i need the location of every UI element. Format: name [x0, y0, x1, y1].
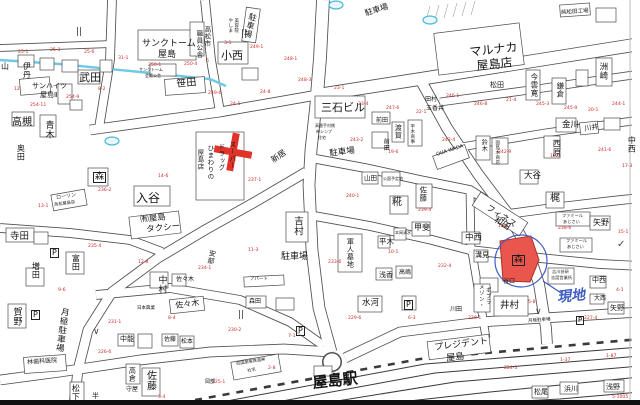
building-footprint [576, 70, 588, 86]
lot-number-label: 4-1 [616, 289, 624, 294]
map-name-label: 矢野 [593, 219, 609, 227]
lot-number-label: 8-2 [98, 88, 106, 93]
parking-stall-line [462, 2, 466, 16]
map-name-label: スーパー [228, 141, 235, 169]
map-name-label: 増田 [31, 262, 39, 279]
lot-number-label: 245-9 [564, 107, 577, 112]
lot-number-label: 5-8 [528, 301, 536, 306]
lot-number-label: 246-8 [474, 103, 487, 108]
map-name-label: 本岡清水 [395, 231, 411, 235]
lot-number-label: 1-37 [560, 359, 570, 364]
lot-number-label: 3-1 [224, 42, 232, 47]
route-badge-icon [105, 137, 119, 145]
map-name-label: 渡賀 [394, 124, 401, 139]
lot-number-label: 12 [14, 88, 20, 93]
lot-number-label: 249-6 [208, 92, 221, 97]
map-name-label: || [241, 30, 247, 39]
map-name-label: 住宅 [318, 136, 326, 140]
lot-number-label: 12-8 [138, 261, 148, 266]
map-name-label: 森田 [249, 299, 261, 305]
map-name-label: 矢野 [610, 305, 624, 312]
parking-label: P [296, 326, 305, 336]
map-name-label: 高嶋 [399, 270, 411, 276]
map-name-label: 溝見 [475, 252, 489, 259]
map-name-label: ファミール [562, 214, 583, 218]
building-footprint [276, 298, 294, 310]
parking-label: P [404, 300, 413, 310]
map-name-label: 浜川 [564, 386, 578, 393]
building-footprint [596, 8, 616, 22]
lot-number-label: 3-4 [158, 396, 166, 401]
lot-number-label: 243-2 [350, 139, 363, 144]
map-name-label: 駐車場 [281, 253, 308, 262]
map-name-label: 松下 [71, 384, 79, 401]
map-name-label: 奥田 [16, 144, 24, 161]
lot-number-label: 25-1 [18, 51, 28, 56]
map-name-label: 高倉 [128, 367, 135, 382]
map-name-label: 寺田 [10, 232, 29, 242]
lot-number-label: 238-6 [558, 227, 571, 232]
lot-number-label: 21-4 [506, 99, 516, 104]
map-name-label: メゾン・ [477, 284, 483, 308]
map-name-label: 中能 [120, 336, 134, 343]
lot-number-label: 5-1005 [612, 396, 628, 401]
map-name-label: 大谷 [524, 172, 541, 181]
parking-label: P [50, 248, 59, 258]
map-name-label: 屋島Ⅱ [40, 92, 57, 99]
map-name-label: ドラッグ [217, 143, 224, 171]
residential-map: 山伊丹武田サンハイツ屋島Ⅱ高槻青木奥田サンクトーム屋島高松市職員公舎サンクトーム… [0, 0, 640, 405]
map-name-label: 鈴木 [480, 139, 486, 152]
map-name-label: 佐藤 [164, 337, 176, 343]
lot-number-label: 247-6 [386, 107, 399, 112]
lot-number-label: 6 [206, 60, 209, 65]
building-footprint [242, 68, 258, 80]
map-name-label: 玉香井 [426, 106, 444, 112]
lot-number-label: 250-4 [184, 63, 197, 68]
map-name-label: 水河 [362, 299, 379, 308]
map-name-label: 西原 [551, 139, 560, 157]
map-name-label: ∨ [93, 328, 100, 337]
map-name-label: 志度営業所 [551, 276, 572, 280]
building-footprint [100, 60, 112, 72]
lot-number-label: 23-1 [334, 87, 344, 92]
map-name-label: 大西 [594, 296, 606, 302]
map-name-label: 田村 [425, 97, 437, 103]
lot-number-label: 239-4 [418, 209, 431, 214]
lot-number-label: 229-6 [348, 317, 361, 322]
map-name-label: 佐藤 [419, 186, 427, 202]
lot-number-label: 230-2 [228, 329, 241, 334]
map-name-label: 職員公舎 [195, 30, 202, 58]
map-name-label: 谷口 [503, 279, 515, 285]
map-name-label: || [76, 28, 82, 37]
map-name-label: 浅野 [606, 384, 620, 391]
map-name-label: 中村 [156, 275, 165, 294]
map-name-label: 会館公舎 [145, 74, 161, 78]
map-name-label: 賀野 [11, 307, 20, 326]
map-name-label: 森 [93, 172, 106, 183]
map-name-label: 山 [1, 63, 9, 71]
lot-number-label: 224-3 [504, 367, 517, 372]
lot-number-label: 234-1 [198, 267, 211, 272]
map-name-label: サンクトーム [142, 40, 196, 49]
map-name-label: 川田 [450, 307, 462, 313]
map-name-label: 岡部 [205, 380, 215, 385]
map-name-label: 日本興業 [137, 307, 155, 312]
map-name-label: 井村 [500, 301, 519, 311]
map-name-label: 山田 [364, 175, 377, 182]
map-name-label: やしま [227, 18, 232, 33]
map-name-label: 今雲寛 [530, 73, 538, 97]
building-footprint [604, 118, 620, 130]
lot-number-label: 248-3 [298, 79, 311, 84]
map-name-label: 宇木商事 [409, 124, 414, 144]
map-name-label: 中西 [627, 136, 635, 153]
lot-number-label: 9-6 [58, 289, 66, 294]
map-name-label: ∨ [535, 308, 542, 317]
map-name-label: 洲崎 [598, 62, 607, 80]
map-name-label: 武田 [79, 72, 101, 84]
page-margin [632, 0, 640, 405]
map-name-label: 金川 [562, 121, 579, 130]
map-name-label: 松本 [181, 339, 193, 345]
map-name-label: 松田 [490, 82, 504, 89]
map-name-label: 中西 [465, 234, 482, 243]
lot-number-label: 17-3 [622, 165, 632, 170]
lot-number-label: 248-1 [284, 58, 297, 63]
map-name-label: || [238, 311, 244, 320]
lot-number-label: 235-4 [88, 245, 101, 250]
map-name-label: 甲斐 [414, 224, 430, 232]
map-name-label: 富田 [71, 254, 79, 271]
lot-number-label: 6-3 [408, 317, 416, 322]
parking-label: P [576, 316, 584, 325]
map-name-label: 中西 [592, 277, 606, 284]
building-footprint [138, 334, 152, 348]
route-badge-icon [329, 1, 343, 9]
lot-number-label: 236-2 [98, 189, 111, 194]
road-surface [508, 198, 640, 214]
map-name-label: 笹田 [176, 78, 197, 90]
building-footprint [62, 60, 78, 72]
lot-number-label: 10-1 [388, 251, 398, 256]
building-footprint [40, 58, 54, 70]
lot-number-label: 8-4 [168, 317, 176, 322]
map-name-label: サンハイツ [32, 83, 67, 90]
parking-stall-line [444, 4, 448, 18]
map-name-label: あじさい [567, 245, 584, 249]
lot-number-label: 240-1 [346, 195, 359, 200]
lot-number-label: 242-4 [442, 139, 455, 144]
lot-number-label: 7-1 [288, 335, 296, 340]
map-name-label: 青木 [43, 120, 52, 139]
road-surface [317, 0, 323, 95]
map-name-label: ポプラ [484, 287, 490, 305]
map-name-label: 佐々木 [176, 277, 194, 283]
map-name-label: 高槻 [12, 118, 32, 129]
lot-number-label: 233-6 [328, 261, 341, 266]
parking-label: P [31, 310, 40, 320]
map-name-label: ひまわりの [206, 145, 213, 180]
lot-number-label: 254-11 [30, 104, 46, 109]
map-name-label: 鎌倉 [556, 82, 564, 98]
building-footprint [70, 100, 82, 110]
map-name-label: 半 [92, 393, 99, 400]
map-base-layer [0, 0, 640, 405]
lot-number-label: 244-1 [612, 103, 625, 108]
map-name-label: 小西 [221, 50, 243, 62]
lot-number-label: 254-9 [66, 96, 79, 101]
map-name-label: あじさい [563, 220, 580, 224]
lot-number-label: 246-1 [446, 95, 459, 100]
lot-number-label: 20-1 [588, 109, 598, 114]
lot-number-label: 249-1 [250, 46, 263, 51]
map-name-label: 前田 [376, 118, 388, 124]
lot-number-label: 228-1 [468, 317, 481, 322]
site-handwritten-annotation: 現地 [556, 284, 586, 307]
lot-number-label: 227-4 [584, 317, 597, 322]
lot-number-label: 13-1 [38, 205, 48, 210]
map-name-label: 屋島店 [196, 149, 203, 170]
lot-number-label: 25-6 [84, 51, 94, 56]
lot-number-label: 15-1 [618, 231, 628, 236]
lot-number-label: 14-6 [158, 175, 168, 180]
lot-number-label: 11-3 [248, 249, 258, 254]
map-name-label: 高松市 [203, 26, 210, 47]
map-name-label: 公園予定地 [383, 177, 403, 181]
map-name-label: サンクトーム [139, 68, 163, 72]
map-name-label: 吉村 [292, 216, 302, 236]
lot-number-label: 242-9 [498, 151, 511, 156]
lot-number-label: 241-6 [598, 149, 611, 154]
lot-number-label: 231-1 [108, 321, 121, 326]
lot-number-label: 237-1 [248, 179, 261, 184]
lot-number-label: 19-6 [388, 151, 398, 156]
lot-number-label: 245-3 [536, 103, 549, 108]
map-name-label: 屋島 [158, 51, 176, 60]
site-parcel-name: 森 [512, 255, 525, 266]
map-name-label: ✓ [617, 240, 625, 251]
lot-number-label: 22-1 [416, 111, 426, 116]
map-name-label: 神シンプ [316, 130, 332, 134]
map-name-label: 国島木商店 [494, 140, 499, 165]
route-badge-icon [423, 16, 437, 24]
map-name-label: 平木 [379, 238, 394, 246]
road-surface [90, 95, 317, 130]
parking-stall-line [471, 1, 475, 15]
map-name-label: 浅香 [379, 272, 393, 279]
map-name-label: 糀 [392, 198, 402, 209]
map-name-label: 入谷 [136, 192, 160, 205]
map-name-label: 高層手村側 [315, 124, 335, 128]
scan-bottom-band [0, 400, 640, 405]
map-name-label: 三石ビル [321, 102, 365, 114]
map-name-label: 伊丹 [22, 62, 30, 79]
map-name-label: ファミール [566, 239, 587, 243]
lot-number-label: 1-87 [606, 355, 616, 360]
lot-number-label: 25-3 [50, 49, 60, 54]
map-name-label: 吉川技研 [552, 270, 569, 274]
map-name-label: アパート [250, 278, 268, 283]
building-footprint [34, 232, 48, 244]
lot-number-label: 31-1 [118, 57, 128, 62]
map-name-label: 松尾 [534, 389, 548, 396]
lot-number-label: 24-8 [260, 91, 270, 96]
parking-stall-line [453, 3, 457, 17]
lot-number-label: 2-8 [268, 367, 276, 372]
map-name-label: 軍人墓地 [346, 238, 353, 268]
map-name-label: 美容院 [233, 18, 238, 33]
lot-number-label: 226-6 [98, 351, 111, 356]
lot-number-label: 232-4 [438, 265, 451, 270]
map-name-label: 梶 [550, 194, 560, 205]
lot-number-label: 24-1 [230, 103, 240, 108]
map-name-label: 前田 [382, 138, 388, 151]
map-name-label: 守屋 [126, 387, 138, 393]
map-name-label: 佐藤 [144, 370, 155, 391]
